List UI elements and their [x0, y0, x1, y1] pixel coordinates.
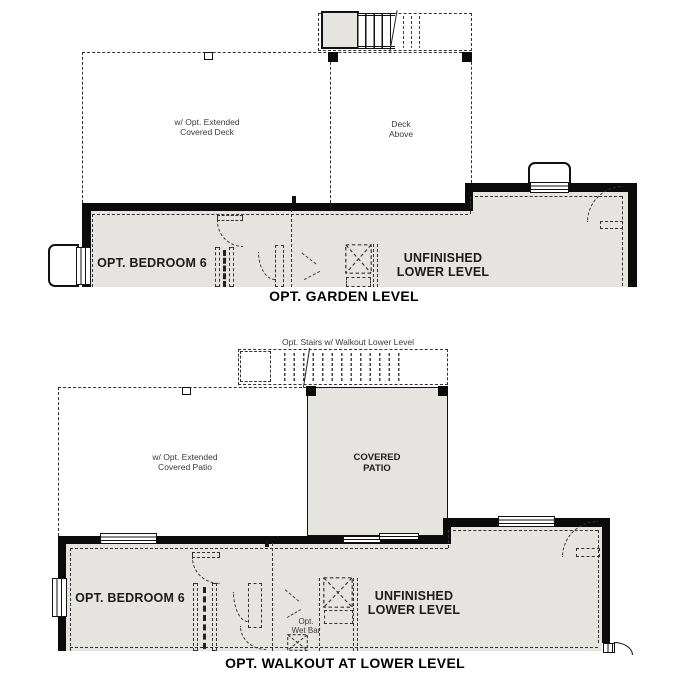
stair-treads-dashed [276, 351, 400, 383]
window [530, 182, 569, 193]
door-leaf [576, 548, 600, 557]
sump-box [324, 610, 353, 624]
door-panel [275, 245, 284, 287]
window [498, 516, 555, 527]
deck-outline-left [82, 52, 83, 203]
opening-jamb [229, 247, 234, 287]
wall-tick [330, 203, 334, 211]
stair-treads-dashed [396, 14, 427, 48]
unfinished-line1: UNFINISHED [368, 589, 460, 603]
plan-title: OPT. WALKOUT AT LOWER LEVEL [225, 656, 465, 671]
door-leaf [600, 221, 623, 229]
wall-left-upper [58, 536, 66, 579]
deck-above-label: Deck Above [389, 119, 413, 139]
deck-post-marker [204, 52, 213, 60]
partition-dashed [319, 578, 320, 651]
partition-dashed-pair [373, 244, 378, 287]
mechanical-xbox [345, 244, 372, 274]
unfinished-line2: LOWER LEVEL [368, 603, 460, 617]
garden-level-plan: w/ Opt. Extended Covered Deck Deck Above… [0, 0, 687, 330]
wall-left [82, 203, 91, 247]
deck-extended-label: w/ Opt. Extended Covered Deck [174, 117, 239, 137]
covered-patio-line1: COVERED [354, 452, 401, 463]
unfinished-line1: UNFINISHED [397, 251, 489, 265]
mechanical-xbox [323, 577, 353, 608]
deck-outline-top [82, 52, 472, 53]
patio-post [306, 386, 316, 396]
partition-dashed-pair [353, 578, 358, 651]
inner-outline-bottom [70, 647, 598, 648]
unfinished-line2: LOWER LEVEL [397, 265, 489, 279]
inner-outline-top [92, 214, 468, 215]
window [100, 533, 157, 544]
wall-left-lower [58, 616, 66, 651]
patio-post-marker [182, 387, 191, 395]
deck-post [462, 52, 472, 62]
patio-extended-line2: Covered Patio [152, 462, 217, 472]
inner-outline-step [470, 196, 471, 214]
stair-treads [357, 13, 395, 49]
patio-extended-label: w/ Opt. Extended Covered Patio [152, 452, 217, 472]
stair-landing [321, 11, 359, 49]
deck-above-line2: Above [389, 129, 413, 139]
inner-outline-left [92, 214, 93, 287]
unfinished-label: UNFINISHED LOWER LEVEL [368, 589, 460, 617]
wet-bar-label: Opt. Wet Bar [292, 617, 321, 635]
sliding-door-panel [379, 533, 419, 540]
inner-outline-top [70, 548, 448, 549]
deck-outline-right [471, 52, 472, 183]
deck-extended-line2: Covered Deck [174, 127, 239, 137]
deck-extended-line1: w/ Opt. Extended [174, 117, 239, 127]
stairs-note-label: Opt. Stairs w/ Walkout Lower Level [282, 337, 414, 347]
bedroom-label: OPT. BEDROOM 6 [97, 256, 207, 270]
walkout-lower-level-plan: Opt. Stairs w/ Walkout Lower Level [0, 330, 687, 687]
wet-bar-line1: Opt. [292, 617, 321, 626]
unfinished-label: UNFINISHED LOWER LEVEL [397, 251, 489, 279]
deck-post [328, 52, 338, 62]
door-panel-dashes [203, 587, 206, 649]
door-panel-dashes [223, 250, 226, 287]
plan-title: OPT. GARDEN LEVEL [269, 289, 419, 304]
inner-outline-step [448, 530, 449, 548]
opening-jamb [212, 583, 217, 651]
walkout-door-swing [614, 642, 633, 655]
wall-tick [292, 196, 296, 203]
covered-patio-label: COVERED PATIO [354, 452, 401, 474]
patio-extended-line1: w/ Opt. Extended [152, 452, 217, 462]
wall-right [628, 183, 637, 287]
inner-outline-right [598, 530, 599, 643]
wall-top-left [82, 203, 473, 211]
floorplan-sheet: w/ Opt. Extended Covered Deck Deck Above… [0, 0, 687, 687]
deck-above-line1: Deck [389, 119, 413, 129]
stair-landing-dashed [240, 351, 271, 382]
wall-tick [265, 540, 269, 547]
inner-outline-left [70, 548, 71, 651]
partition-dashed [291, 209, 292, 287]
opening-jamb [193, 583, 198, 651]
covered-patio-line2: PATIO [354, 463, 401, 474]
egress-window-well [48, 244, 79, 287]
window [52, 578, 67, 617]
sump-box [346, 277, 371, 287]
partition-dashed [272, 543, 273, 651]
sliding-door-panel [343, 536, 381, 543]
wall-right [602, 518, 610, 643]
bedroom-label: OPT. BEDROOM 6 [75, 591, 185, 605]
opening-jamb [215, 247, 220, 287]
deck-divider [330, 52, 331, 203]
patio-post [438, 386, 448, 396]
wet-bar-xbox [287, 634, 308, 651]
door-panel [248, 583, 262, 628]
patio-outline-left [58, 387, 59, 536]
egress-window [76, 247, 91, 285]
